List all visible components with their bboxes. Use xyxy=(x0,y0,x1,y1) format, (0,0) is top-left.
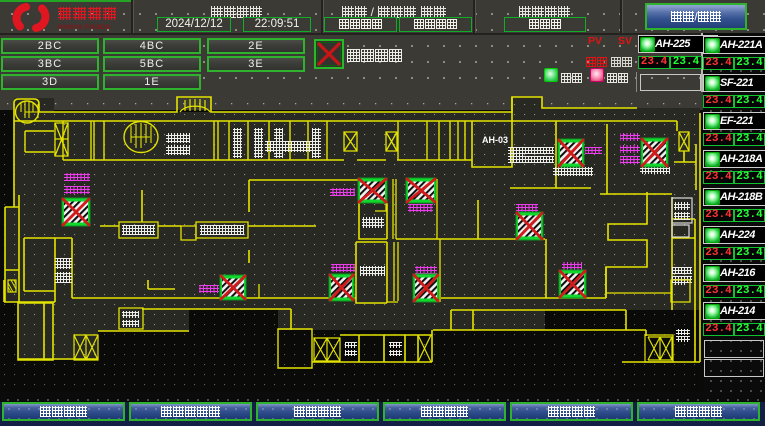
svg-text:HUNYA FOODS: HUNYA FOODS xyxy=(58,24,111,31)
svg-text:AH-03: AH-03 xyxy=(482,135,508,145)
